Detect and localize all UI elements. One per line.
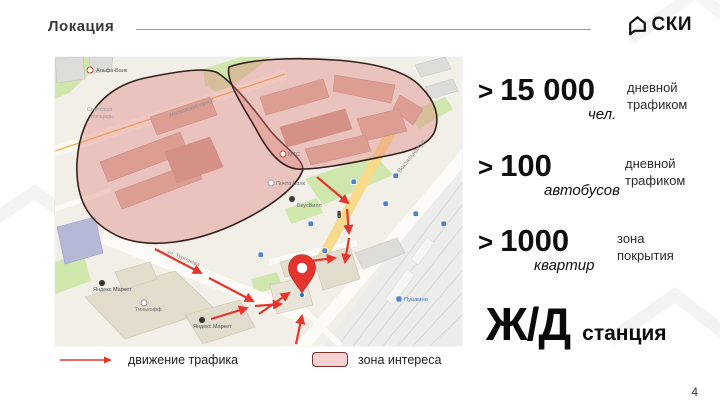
legend-interest-label: зона интереса bbox=[358, 353, 441, 367]
stat-apartments: > 1000 квартир зона покрытия bbox=[478, 223, 718, 274]
company-logo-text: СКИ bbox=[652, 14, 692, 36]
station-small-text: станция bbox=[582, 322, 666, 346]
map-canvas: Московский просп. ул. Тургенева Вокзальн… bbox=[55, 57, 462, 346]
stat-prefix: > bbox=[478, 76, 493, 107]
stat-daily-people: > 15 000 чел. дневной трафиком bbox=[478, 72, 718, 123]
stat-value: 15 000 bbox=[500, 72, 595, 108]
street-label: Советская bbox=[87, 107, 112, 113]
legend-interest: зона интереса bbox=[312, 352, 441, 367]
interest-zone-swatch bbox=[312, 352, 348, 367]
traffic-light-icon bbox=[338, 211, 341, 218]
stat-prefix: > bbox=[478, 152, 493, 183]
poi-label: ВкусВилл bbox=[297, 203, 322, 209]
poi-label: Яндекс Маркет bbox=[93, 287, 132, 293]
page-number: 4 bbox=[691, 385, 698, 399]
stat-description: дневной трафиком bbox=[627, 79, 687, 113]
page-title: Локация bbox=[48, 18, 114, 35]
station-big-text: Ж/Д bbox=[486, 297, 570, 351]
stat-railway-station: Ж/Д станция bbox=[486, 297, 667, 351]
stat-prefix: > bbox=[478, 227, 493, 258]
stat-description: дневной трафиком bbox=[625, 155, 685, 189]
legend-traffic-label: движение трафика bbox=[128, 353, 238, 367]
stat-description: зона покрытия bbox=[617, 230, 674, 264]
location-map: Московский просп. ул. Тургенева Вокзальн… bbox=[55, 57, 462, 346]
poi-label: МТС bbox=[288, 152, 300, 158]
poi-label: Альфа-Банк bbox=[96, 68, 128, 74]
slide: { "slide": {"title": "Локация", "page_nu… bbox=[0, 0, 720, 405]
house-logo-icon bbox=[627, 15, 648, 36]
company-logo: СКИ bbox=[627, 14, 692, 36]
street-label: площадь bbox=[91, 114, 113, 120]
stat-value: 1000 bbox=[500, 223, 569, 259]
poi-label: Пушкино bbox=[404, 297, 428, 303]
poi-label: Почта Банк bbox=[276, 181, 306, 187]
stat-value: 100 bbox=[500, 148, 552, 184]
legend-traffic: движение трафика bbox=[58, 353, 238, 367]
stat-daily-buses: > 100 автобусов дневной трафиком bbox=[478, 148, 718, 199]
traffic-arrow-icon bbox=[58, 354, 114, 366]
title-divider bbox=[136, 29, 591, 30]
poi-label: Тинькофф bbox=[135, 307, 162, 313]
poi-label: Яндекс Маркет bbox=[193, 324, 232, 330]
